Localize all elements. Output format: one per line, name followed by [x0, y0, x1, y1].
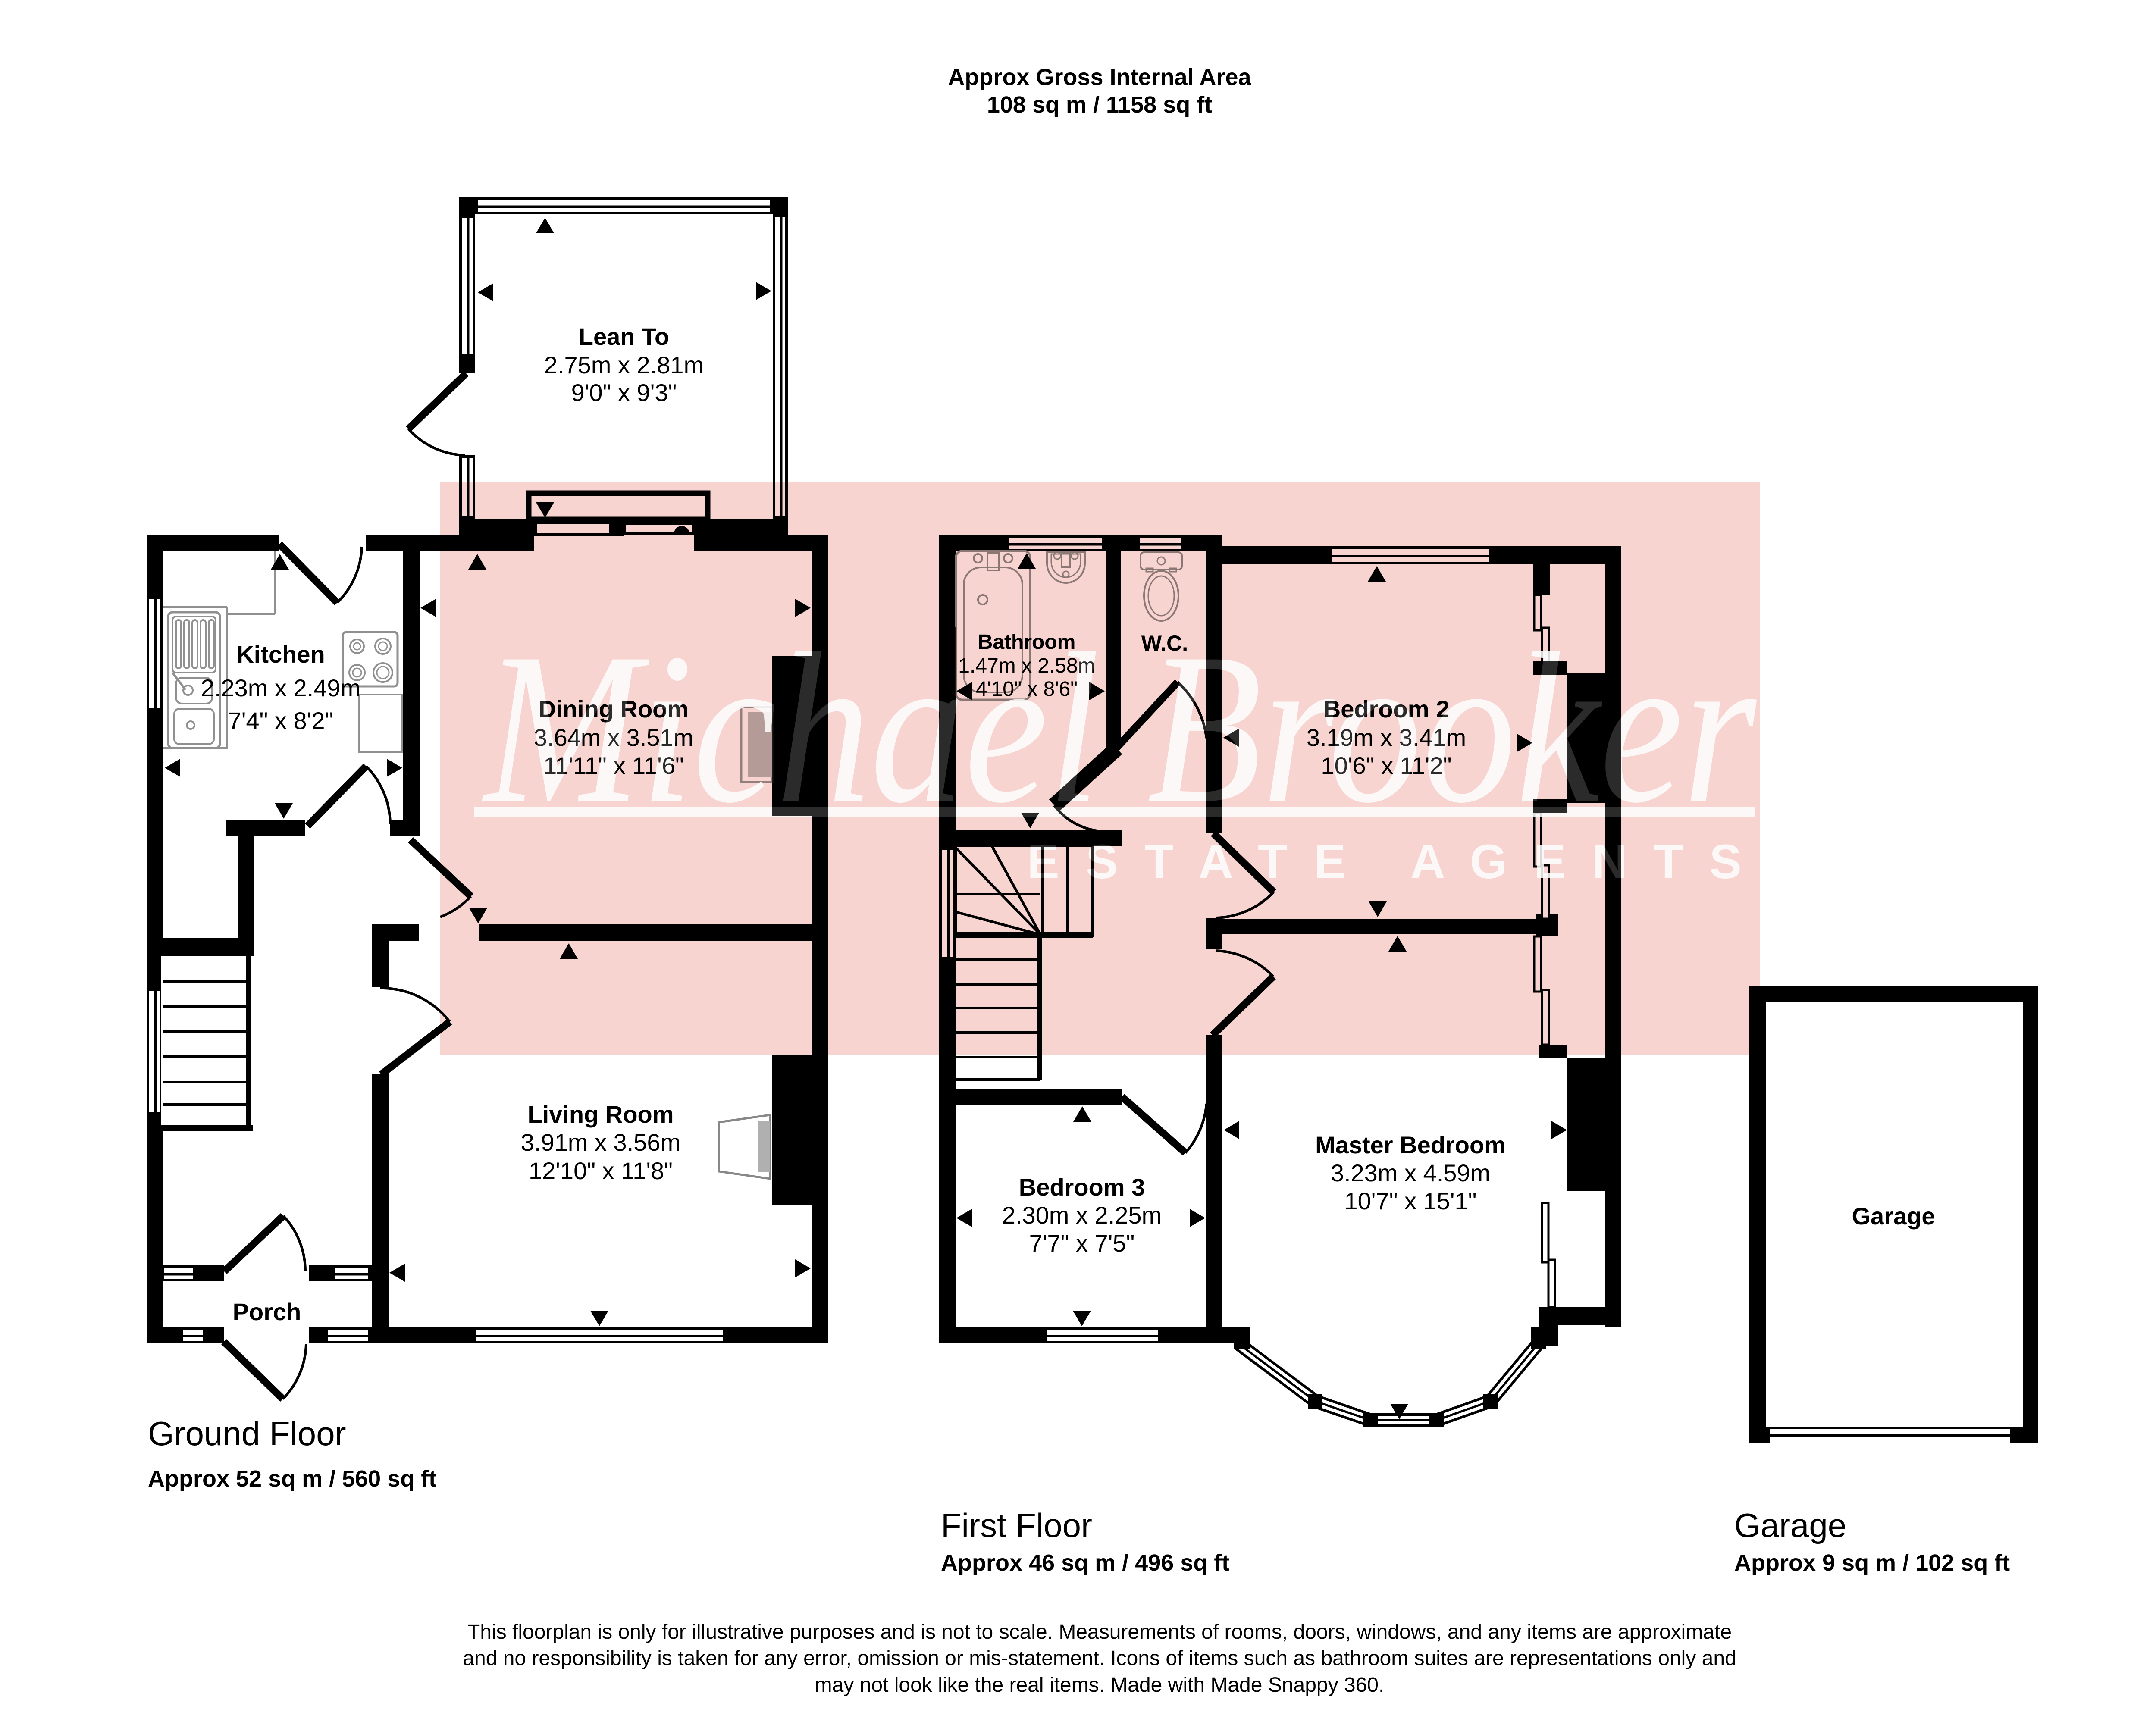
svg-text:2.75m x 2.81m: 2.75m x 2.81m — [544, 351, 704, 379]
svg-text:Garage: Garage — [1852, 1202, 1935, 1230]
svg-text:2.30m x 2.25m: 2.30m x 2.25m — [1002, 1202, 1162, 1229]
svg-text:Dining Room: Dining Room — [539, 695, 689, 723]
svg-text:3.19m x 3.41m: 3.19m x 3.41m — [1307, 724, 1466, 751]
svg-text:Porch: Porch — [233, 1298, 301, 1325]
svg-text:Master Bedroom: Master Bedroom — [1315, 1131, 1506, 1158]
svg-text:Garage: Garage — [1734, 1506, 1846, 1544]
svg-text:Living Room: Living Room — [527, 1101, 674, 1128]
svg-text:may not look like the real ite: may not look like the real items. Made w… — [815, 1674, 1385, 1697]
svg-text:Bedroom 3: Bedroom 3 — [1019, 1174, 1145, 1201]
svg-text:11'11" x 11'6": 11'11" x 11'6" — [543, 752, 684, 779]
svg-text:7'4" x 8'2": 7'4" x 8'2" — [228, 707, 334, 734]
svg-text:10'7" x 15'1": 10'7" x 15'1" — [1344, 1187, 1476, 1215]
svg-text:Bedroom 2: Bedroom 2 — [1323, 695, 1450, 723]
svg-text:Approx 52 sq m / 560 sq ft: Approx 52 sq m / 560 sq ft — [148, 1466, 436, 1492]
svg-text:9'0" x 9'3": 9'0" x 9'3" — [571, 379, 677, 406]
svg-text:3.64m x 3.51m: 3.64m x 3.51m — [534, 724, 693, 751]
svg-text:First Floor: First Floor — [941, 1506, 1092, 1544]
svg-text:Approx 46 sq m / 496 sq ft: Approx 46 sq m / 496 sq ft — [941, 1550, 1229, 1576]
svg-text:7'7" x 7'5": 7'7" x 7'5" — [1029, 1230, 1135, 1257]
svg-text:108 sq m / 1158 sq ft: 108 sq m / 1158 sq ft — [987, 92, 1212, 118]
svg-text:12'10" x 11'8": 12'10" x 11'8" — [529, 1157, 673, 1184]
svg-text:2.23m x 2.49m: 2.23m x 2.49m — [201, 674, 360, 701]
svg-text:1.47m x 2.58m: 1.47m x 2.58m — [958, 654, 1095, 677]
svg-text:Ground Floor: Ground Floor — [148, 1415, 346, 1452]
svg-text:W.C.: W.C. — [1141, 631, 1188, 655]
svg-text:Approx 9 sq m / 102 sq ft: Approx 9 sq m / 102 sq ft — [1734, 1550, 2010, 1576]
svg-text:Approx Gross Internal Area: Approx Gross Internal Area — [948, 64, 1251, 90]
svg-text:3.91m x 3.56m: 3.91m x 3.56m — [521, 1129, 680, 1156]
svg-text:4'10" x 8'6": 4'10" x 8'6" — [976, 678, 1078, 701]
svg-text:10'6" x 11'2": 10'6" x 11'2" — [1321, 752, 1452, 779]
svg-text:and no responsibility is taken: and no responsibility is taken for any e… — [463, 1647, 1736, 1670]
svg-text:Kitchen: Kitchen — [236, 641, 325, 668]
svg-text:This floorplan is only for ill: This floorplan is only for illustrative … — [467, 1621, 1732, 1643]
svg-text:Lean To: Lean To — [579, 323, 670, 350]
svg-text:Bathroom: Bathroom — [978, 631, 1076, 654]
svg-text:3.23m x 4.59m: 3.23m x 4.59m — [1331, 1159, 1490, 1186]
